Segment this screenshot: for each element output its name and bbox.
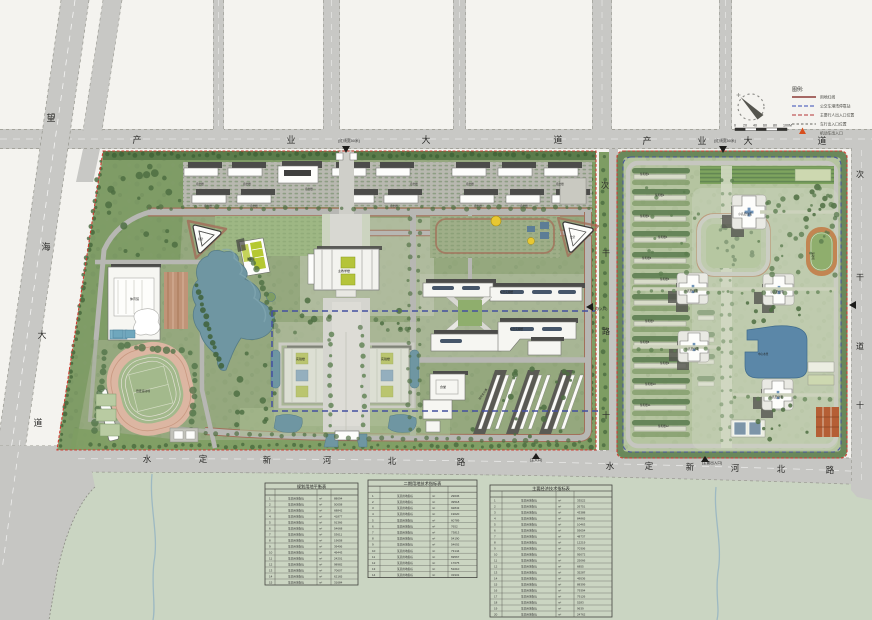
svg-text:59054: 59054 <box>577 529 586 533</box>
svg-text:40: 40 <box>753 124 757 128</box>
svg-text:m²: m² <box>319 504 322 507</box>
svg-text:m²: m² <box>558 596 561 599</box>
svg-text:河: 河 <box>731 463 740 473</box>
svg-text:m²: m² <box>319 516 322 519</box>
svg-text:12: 12 <box>494 565 498 569</box>
svg-text:某某用地指标: 某某用地指标 <box>397 561 413 565</box>
svg-text:11: 11 <box>372 555 375 559</box>
svg-text:某某用地指标: 某某用地指标 <box>521 529 537 533</box>
svg-text:80: 80 <box>773 124 777 128</box>
svg-text:m²: m² <box>432 495 435 498</box>
svg-text:大: 大 <box>421 134 430 145</box>
svg-text:次: 次 <box>601 180 609 190</box>
svg-text:某某用地指标: 某某用地指标 <box>288 521 304 525</box>
svg-text:70306: 70306 <box>577 547 586 551</box>
svg-text:宿舍楼: 宿舍楼 <box>466 182 474 186</box>
svg-text:14: 14 <box>372 573 376 577</box>
svg-text:10: 10 <box>269 551 273 555</box>
svg-text:道: 道 <box>817 135 826 146</box>
svg-text:宿舍楼: 宿舍楼 <box>243 182 251 186</box>
svg-text:84865: 84865 <box>577 517 586 521</box>
svg-text:宿舍楼: 宿舍楼 <box>556 182 564 186</box>
svg-text:m²: m² <box>558 512 561 515</box>
svg-text:宿舍楼: 宿舍楼 <box>250 204 258 208</box>
svg-text:10: 10 <box>372 549 376 553</box>
svg-text:13: 13 <box>372 567 376 571</box>
svg-text:49536: 49536 <box>577 577 586 581</box>
svg-text:m²: m² <box>558 572 561 575</box>
svg-text:体育馆: 体育馆 <box>130 296 139 301</box>
svg-text:m²: m² <box>558 602 561 605</box>
svg-text:m²: m² <box>319 534 322 537</box>
svg-text:(红线宽50米): (红线宽50米) <box>714 138 737 143</box>
svg-text:某某用地指标: 某某用地指标 <box>397 555 413 559</box>
svg-text:m²: m² <box>432 568 435 571</box>
svg-text:某某用地指标: 某某用地指标 <box>521 583 537 587</box>
svg-text:干: 干 <box>856 273 864 282</box>
svg-text:11: 11 <box>269 557 272 561</box>
svg-text:某某用地指标: 某某用地指标 <box>288 503 304 507</box>
svg-text:m²: m² <box>432 513 435 516</box>
svg-text:54190: 54190 <box>451 537 460 541</box>
svg-text:68842: 68842 <box>334 509 343 513</box>
svg-text:住宅楼11: 住宅楼11 <box>640 403 651 407</box>
svg-text:某某用地指标: 某某用地指标 <box>288 575 304 579</box>
svg-text:6855: 6855 <box>577 565 584 569</box>
svg-text:某某用地指标: 某某用地指标 <box>397 524 413 528</box>
svg-text:某某用地指标: 某某用地指标 <box>521 499 537 503</box>
svg-text:20: 20 <box>743 124 747 128</box>
svg-text:m²: m² <box>319 546 322 549</box>
svg-text:某某用地指标: 某某用地指标 <box>521 577 537 581</box>
svg-text:会堂: 会堂 <box>570 235 576 239</box>
svg-text:某某用地指标: 某某用地指标 <box>397 506 413 510</box>
svg-text:92843: 92843 <box>451 506 460 510</box>
svg-text:35287: 35287 <box>577 571 586 575</box>
svg-text:某某用地指标: 某某用地指标 <box>521 595 537 599</box>
svg-text:某某用地指标: 某某用地指标 <box>397 494 413 498</box>
svg-text:m²: m² <box>319 528 322 531</box>
svg-text:31931: 31931 <box>451 573 460 577</box>
svg-text:m²: m² <box>432 556 435 559</box>
svg-text:某某用地指标: 某某用地指标 <box>288 551 304 555</box>
svg-text:39518: 39518 <box>451 500 460 504</box>
svg-text:91366: 91366 <box>334 521 343 525</box>
svg-text:m²: m² <box>432 562 435 565</box>
svg-text:十: 十 <box>602 410 610 420</box>
svg-text:某某用地指标: 某某用地指标 <box>521 523 537 527</box>
svg-text:43388: 43388 <box>577 511 586 515</box>
svg-text:20: 20 <box>494 613 498 617</box>
svg-text:m²: m² <box>558 518 561 521</box>
svg-text:住宅楼1: 住宅楼1 <box>640 172 650 176</box>
svg-text:住宅楼7: 住宅楼7 <box>645 319 655 323</box>
svg-text:m²: m² <box>319 564 322 567</box>
svg-text:某某用地指标: 某某用地指标 <box>397 531 413 535</box>
svg-text:道: 道 <box>553 134 562 145</box>
svg-text:12: 12 <box>269 563 273 567</box>
svg-text:31684: 31684 <box>334 581 343 585</box>
svg-text:某某用地指标: 某某用地指标 <box>397 567 413 571</box>
svg-text:某某用地指标: 某某用地指标 <box>397 537 413 541</box>
svg-text:m²: m² <box>319 552 322 555</box>
svg-text:机动车出入口: 机动车出入口 <box>820 131 843 136</box>
svg-text:33522: 33522 <box>577 499 586 503</box>
svg-text:11: 11 <box>494 559 497 563</box>
svg-text:19020: 19020 <box>451 512 460 516</box>
svg-text:62165: 62165 <box>334 575 343 579</box>
svg-text:m²: m² <box>319 570 322 573</box>
svg-text:某某用地指标: 某某用地指标 <box>521 511 537 515</box>
svg-text:车行出入口位置: 车行出入口位置 <box>820 122 847 127</box>
svg-text:公交车港湾停靠站: 公交车港湾停靠站 <box>820 104 851 109</box>
svg-text:住宅楼3: 住宅楼3 <box>640 214 650 218</box>
svg-text:定: 定 <box>645 461 654 471</box>
svg-text:小高层住宅: 小高层住宅 <box>738 212 752 216</box>
svg-text:路: 路 <box>826 465 835 475</box>
svg-text:m²: m² <box>432 525 435 528</box>
svg-text:某某用地指标: 某某用地指标 <box>521 601 537 605</box>
svg-text:(次入口): (次入口) <box>595 306 607 311</box>
svg-text:大: 大 <box>743 135 752 146</box>
svg-text:实验楼: 实验楼 <box>381 356 390 361</box>
svg-text:某某用地指标: 某某用地指标 <box>288 515 304 519</box>
svg-text:17: 17 <box>494 595 498 599</box>
svg-text:道: 道 <box>856 341 864 351</box>
svg-text:m²: m² <box>319 582 322 585</box>
svg-text:河: 河 <box>323 455 332 465</box>
svg-text:水: 水 <box>143 454 152 464</box>
svg-text:某某用地指标: 某某用地指标 <box>521 553 537 557</box>
svg-text:业: 业 <box>286 135 295 145</box>
svg-text:新: 新 <box>686 462 695 472</box>
svg-text:14: 14 <box>269 575 273 579</box>
svg-text:道: 道 <box>33 417 42 428</box>
svg-text:m²: m² <box>558 590 561 593</box>
svg-text:路: 路 <box>457 457 466 467</box>
svg-text:次: 次 <box>856 169 864 179</box>
svg-text:19658: 19658 <box>334 539 343 543</box>
svg-text:小高层住宅: 小高层住宅 <box>684 289 698 293</box>
svg-text:39406: 39406 <box>334 545 343 549</box>
svg-text:m²: m² <box>558 584 561 587</box>
svg-text:十: 十 <box>856 400 864 410</box>
svg-text:m²: m² <box>319 498 322 501</box>
svg-text:大: 大 <box>37 329 46 340</box>
svg-text:小高层住宅: 小高层住宅 <box>770 290 784 294</box>
svg-text:79394: 79394 <box>577 589 586 593</box>
svg-text:m²: m² <box>432 550 435 553</box>
svg-text:食堂: 食堂 <box>440 384 446 389</box>
svg-text:53611: 53611 <box>334 533 342 537</box>
svg-text:某某用地指标: 某某用地指标 <box>521 559 537 563</box>
svg-text:住宅楼5: 住宅楼5 <box>642 256 652 260</box>
svg-text:m²: m² <box>432 519 435 522</box>
svg-text:某某用地指标: 某某用地指标 <box>397 512 413 516</box>
svg-text:某某用地指标: 某某用地指标 <box>521 535 537 539</box>
svg-text:19: 19 <box>494 607 498 611</box>
svg-text:24762: 24762 <box>577 613 586 617</box>
svg-text:图书馆: 图书馆 <box>247 257 255 261</box>
svg-text:54668: 54668 <box>334 527 343 531</box>
svg-text:住宅楼12: 住宅楼12 <box>658 424 669 428</box>
svg-text:产: 产 <box>132 134 141 145</box>
svg-text:m²: m² <box>558 560 561 563</box>
svg-text:中心水景: 中心水景 <box>758 352 769 356</box>
svg-text:88094: 88094 <box>334 497 343 501</box>
svg-text:某某用地指标: 某某用地指标 <box>521 547 537 551</box>
svg-text:(红线宽50米): (红线宽50米) <box>338 138 361 143</box>
svg-text:望: 望 <box>46 112 55 123</box>
svg-text:m²: m² <box>432 532 435 535</box>
svg-text:某某用地指标: 某某用地指标 <box>521 565 537 569</box>
svg-text:某某用地指标: 某某用地指标 <box>397 573 413 577</box>
svg-text:18: 18 <box>494 601 498 605</box>
svg-text:新: 新 <box>263 455 272 465</box>
svg-text:小高层住宅: 小高层住宅 <box>769 395 783 399</box>
svg-text:m²: m² <box>558 524 561 527</box>
svg-text:m²: m² <box>558 530 561 533</box>
svg-text:13: 13 <box>269 569 273 573</box>
svg-text:住宅楼8: 住宅楼8 <box>640 340 650 344</box>
svg-text:60: 60 <box>763 124 767 128</box>
svg-text:北: 北 <box>388 456 397 466</box>
svg-text:产: 产 <box>642 135 651 146</box>
svg-text:某某用地指标: 某某用地指标 <box>288 533 304 537</box>
svg-text:住宅楼2: 住宅楼2 <box>655 193 665 197</box>
svg-text:m²: m² <box>558 500 561 503</box>
svg-text:路: 路 <box>602 326 610 336</box>
svg-text:住宅楼4: 住宅楼4 <box>658 235 668 239</box>
svg-text:m²: m² <box>432 574 435 577</box>
svg-text:礼堂: 礼堂 <box>198 237 204 241</box>
svg-text:运动场: 运动场 <box>811 252 815 260</box>
svg-text:m²: m² <box>319 540 322 543</box>
svg-text:某某用地指标: 某某用地指标 <box>397 549 413 553</box>
svg-text:100M: 100M <box>783 124 792 128</box>
svg-text:某某用地指标: 某某用地指标 <box>288 581 304 585</box>
svg-text:m²: m² <box>319 522 322 525</box>
svg-text:41877: 41877 <box>334 515 343 519</box>
svg-text:住宅楼10: 住宅楼10 <box>645 382 656 386</box>
svg-text:79126: 79126 <box>577 595 586 599</box>
svg-text:综合实验楼: 综合实验楼 <box>510 327 523 331</box>
svg-text:某某用地指标: 某某用地指标 <box>288 545 304 549</box>
svg-text:m²: m² <box>558 554 561 557</box>
svg-text:13: 13 <box>494 571 498 575</box>
svg-text:某某用地指标: 某某用地指标 <box>288 509 304 513</box>
svg-text:m²: m² <box>432 538 435 541</box>
svg-text:15: 15 <box>494 583 498 587</box>
svg-text:田径运动场: 田径运动场 <box>136 389 150 393</box>
svg-text:9639: 9639 <box>577 607 584 611</box>
svg-text:某某用地指标: 某某用地指标 <box>397 518 413 522</box>
svg-text:0: 0 <box>734 124 736 128</box>
svg-text:m²: m² <box>558 542 561 545</box>
svg-text:m²: m² <box>319 558 322 561</box>
svg-text:某某用地指标: 某某用地指标 <box>521 541 537 545</box>
svg-text:住宅楼9: 住宅楼9 <box>660 361 670 365</box>
svg-text:宿舍楼: 宿舍楼 <box>410 182 418 186</box>
svg-text:88399: 88399 <box>577 583 586 587</box>
svg-text:主要行人出入口位置: 主要行人出入口位置 <box>820 113 854 118</box>
svg-text:主教学楼: 主教学楼 <box>338 268 350 273</box>
svg-text:实验楼: 实验楼 <box>296 356 305 361</box>
svg-text:某某用地指标: 某某用地指标 <box>397 500 413 504</box>
svg-text:98982: 98982 <box>334 563 343 567</box>
svg-text:m²: m² <box>558 506 561 509</box>
svg-text:12219: 12219 <box>577 541 586 545</box>
svg-text:m²: m² <box>558 536 561 539</box>
svg-text:业: 业 <box>697 136 706 146</box>
svg-text:m²: m² <box>432 544 435 547</box>
svg-text:小高层住宅: 小高层住宅 <box>685 347 699 351</box>
svg-text:北: 北 <box>777 464 786 474</box>
svg-text:干: 干 <box>602 249 610 258</box>
svg-text:29636: 29636 <box>451 494 460 498</box>
svg-text:95072: 95072 <box>577 553 586 557</box>
svg-text:综合实验楼: 综合实验楼 <box>500 290 513 294</box>
svg-text:某某用地指标: 某某用地指标 <box>288 557 304 561</box>
svg-text:宿舍楼: 宿舍楼 <box>305 187 313 191</box>
svg-text:49443: 49443 <box>334 551 343 555</box>
svg-text:5283: 5283 <box>577 601 584 605</box>
svg-text:m²: m² <box>558 566 561 569</box>
svg-text:某某用地指标: 某某用地指标 <box>521 571 537 575</box>
svg-text:16: 16 <box>494 589 498 593</box>
svg-text:某某用地指标: 某某用地指标 <box>397 543 413 547</box>
svg-text:某某用地指标: 某某用地指标 <box>288 527 304 531</box>
svg-text:50058: 50058 <box>334 503 343 507</box>
svg-text:宿舍楼: 宿舍楼 <box>196 182 204 186</box>
svg-text:某某用地指标: 某某用地指标 <box>521 517 537 521</box>
svg-text:m²: m² <box>558 614 561 617</box>
svg-text:69567: 69567 <box>451 555 460 559</box>
svg-text:14: 14 <box>494 577 498 581</box>
svg-text:某某用地指标: 某某用地指标 <box>288 539 304 543</box>
svg-text:51010: 51010 <box>451 567 460 571</box>
svg-text:60789: 60789 <box>451 518 460 522</box>
svg-text:m²: m² <box>319 576 322 579</box>
svg-text:m²: m² <box>319 510 322 513</box>
svg-text:10: 10 <box>494 553 498 557</box>
svg-text:26751: 26751 <box>577 505 586 509</box>
svg-text:海: 海 <box>41 241 50 252</box>
svg-text:某某用地指标: 某某用地指标 <box>288 497 304 501</box>
svg-text:m²: m² <box>432 507 435 510</box>
svg-text:m²: m² <box>558 608 561 611</box>
svg-text:70607: 70607 <box>334 569 343 573</box>
svg-text:17675: 17675 <box>451 561 460 565</box>
svg-text:水: 水 <box>606 461 615 471</box>
svg-text:某某用地指标: 某某用地指标 <box>521 607 537 611</box>
svg-text:用地红线: 用地红线 <box>820 95 835 100</box>
svg-text:某某用地指标: 某某用地指标 <box>288 569 304 573</box>
svg-text:定: 定 <box>199 454 208 464</box>
svg-text:图例:: 图例: <box>792 86 803 93</box>
svg-text:54692: 54692 <box>451 543 460 547</box>
svg-text:某某用地指标: 某某用地指标 <box>521 613 537 617</box>
svg-text:7652: 7652 <box>451 524 458 528</box>
svg-text:15: 15 <box>269 581 273 585</box>
svg-text:某某用地指标: 某某用地指标 <box>521 505 537 509</box>
svg-text:73813: 73813 <box>451 531 460 535</box>
svg-text:48737: 48737 <box>577 535 586 539</box>
svg-text:m²: m² <box>558 578 561 581</box>
svg-text:m²: m² <box>558 548 561 551</box>
svg-text:10463: 10463 <box>577 523 586 527</box>
svg-text:24201: 24201 <box>334 557 343 561</box>
svg-text:住宅楼6: 住宅楼6 <box>660 277 670 281</box>
svg-text:73144: 73144 <box>451 549 460 553</box>
svg-text:某某用地指标: 某某用地指标 <box>288 563 304 567</box>
svg-text:12: 12 <box>372 561 376 565</box>
svg-text:某某用地指标: 某某用地指标 <box>521 589 537 593</box>
svg-text:25066: 25066 <box>577 559 586 563</box>
svg-text:m²: m² <box>432 501 435 504</box>
